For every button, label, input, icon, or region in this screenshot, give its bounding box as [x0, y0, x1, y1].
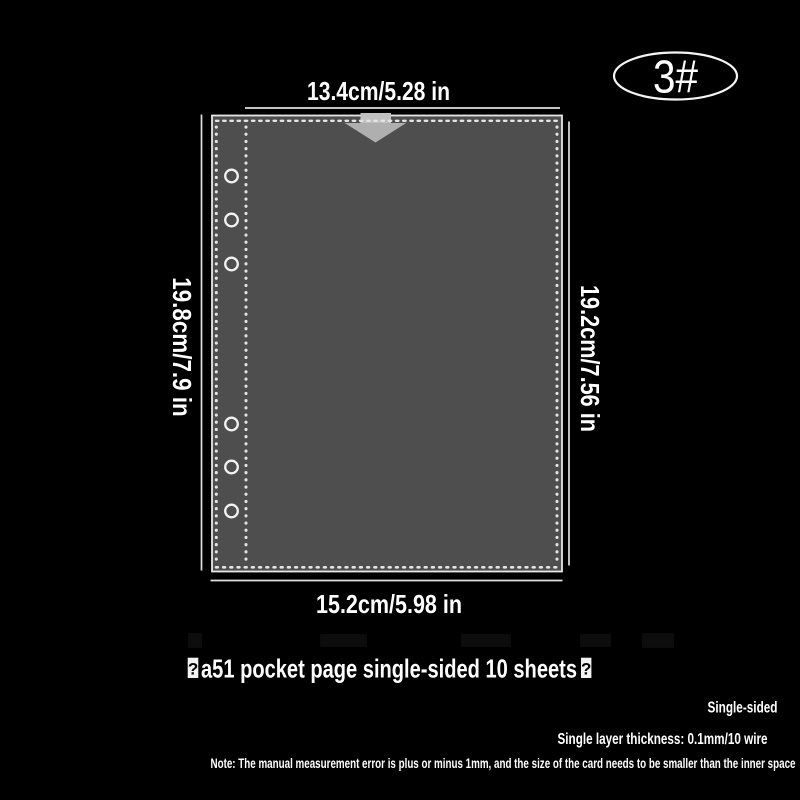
svg-text:Single-sided: Single-sided	[708, 700, 778, 717]
svg-text:Single layer thickness: 0.1mm/: Single layer thickness: 0.1mm/10 wire	[558, 731, 768, 748]
svg-text:13.4cm/5.28 in: 13.4cm/5.28 in	[307, 76, 450, 106]
svg-text:a51 pocket page single-sided 1: a51 pocket page single-sided 10 sheets	[201, 654, 577, 684]
svg-text:3#: 3#	[653, 51, 698, 103]
svg-text:?: ?	[581, 659, 591, 678]
svg-text:19.2cm/7.56 in: 19.2cm/7.56 in	[575, 285, 605, 432]
svg-text:15.2cm/5.98 in: 15.2cm/5.98 in	[316, 589, 462, 619]
svg-text:Note: The manual measurement e: Note: The manual measurement error is pl…	[211, 756, 796, 771]
svg-text:19.8cm/7.9 in: 19.8cm/7.9 in	[167, 277, 197, 417]
svg-text:?: ?	[188, 659, 198, 678]
